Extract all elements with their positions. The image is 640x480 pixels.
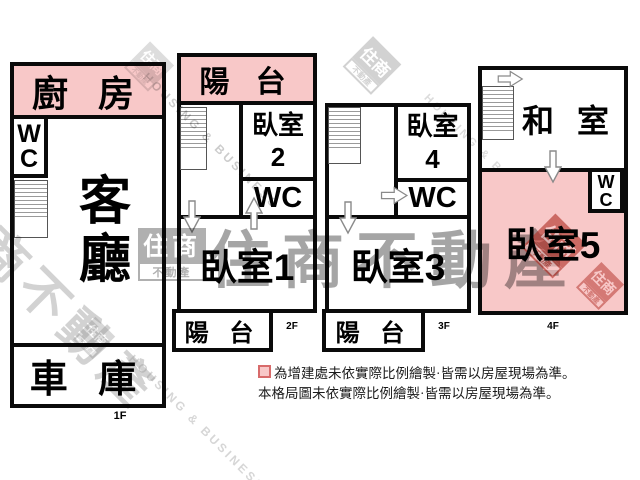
legend-line1: 為增建處未依實際比例繪製·皆需以房屋現場為準。 xyxy=(274,362,576,382)
room-tatami: 和 室 xyxy=(514,70,624,168)
room-kitchen-label: 廚 房 xyxy=(32,65,144,117)
room-tatami-label: 和 室 xyxy=(522,96,616,142)
stairs-1f-steps xyxy=(15,181,47,217)
stairs-2f-steps xyxy=(181,108,206,148)
room-bedroom5-label: 臥室5 xyxy=(506,215,601,269)
arrow-right-icon xyxy=(496,70,526,88)
room-living-label: 客廳 xyxy=(76,173,134,289)
floor2-label: 2F xyxy=(280,321,304,332)
room-bedroom4: 臥室 4 xyxy=(394,103,471,182)
room-kitchen: 廚 房 xyxy=(14,66,162,119)
room-wc-1f: WC xyxy=(14,119,48,178)
floor-plan-canvas: 廚 房 WC 客廳 車 庫 1F 陽 台 臥室 2 WC 臥室1 陽 台 2F xyxy=(0,0,640,480)
brand-stamp-icon: 住商 不動產 xyxy=(343,36,402,95)
room-balcony-3f-bottom-label: 陽 台 xyxy=(336,313,412,348)
room-balcony-2f-top-label: 陽 台 xyxy=(199,57,294,101)
room-balcony-3f-bottom: 陽 台 xyxy=(322,309,425,352)
room-bedroom2-label: 臥室 xyxy=(252,109,304,142)
stairs-1f xyxy=(14,180,48,238)
arrow-down-icon xyxy=(339,201,357,235)
room-bedroom4-label: 臥室 xyxy=(406,110,458,143)
room-bedroom4-number: 4 xyxy=(406,143,458,176)
stairs-4f-steps xyxy=(483,87,513,131)
room-bedroom1-label: 臥室1 xyxy=(200,237,295,291)
room-balcony-2f-bottom: 陽 台 xyxy=(172,309,273,352)
room-garage: 車 庫 xyxy=(10,343,166,408)
room-wc-3f-label: WC xyxy=(408,182,456,215)
room-balcony-2f-bottom-label: 陽 台 xyxy=(185,313,261,348)
legend-pink-swatch xyxy=(258,365,271,378)
room-living: 客廳 xyxy=(48,119,162,343)
stairs-3f-steps xyxy=(329,108,360,148)
room-balcony-2f-top: 陽 台 xyxy=(181,57,313,105)
stairs-4f xyxy=(482,86,514,140)
floor4-label: 4F xyxy=(541,321,565,332)
room-garage-label: 車 庫 xyxy=(30,348,147,403)
stairs-3f xyxy=(328,107,361,164)
room-bedroom2: 臥室 2 xyxy=(239,101,317,181)
floor1-label: 1F xyxy=(100,410,140,422)
stairs-2f xyxy=(180,107,207,170)
floor3-label: 3F xyxy=(432,321,456,332)
room-wc-4f: WC xyxy=(588,168,624,213)
room-bedroom2-number: 2 xyxy=(252,141,304,174)
room-bedroom3-label: 臥室3 xyxy=(351,237,446,291)
arrow-down-icon xyxy=(544,148,562,186)
arrow-up-icon xyxy=(245,196,263,230)
arrow-right-icon xyxy=(380,186,410,205)
room-wc-1f-label: WC xyxy=(16,122,42,172)
room-wc-4f-label: WC xyxy=(596,173,616,209)
arrow-down-icon xyxy=(183,200,201,234)
legend-line2: 本格局圖未依實際比例繪製·皆需以房屋現場為準。 xyxy=(258,382,560,402)
